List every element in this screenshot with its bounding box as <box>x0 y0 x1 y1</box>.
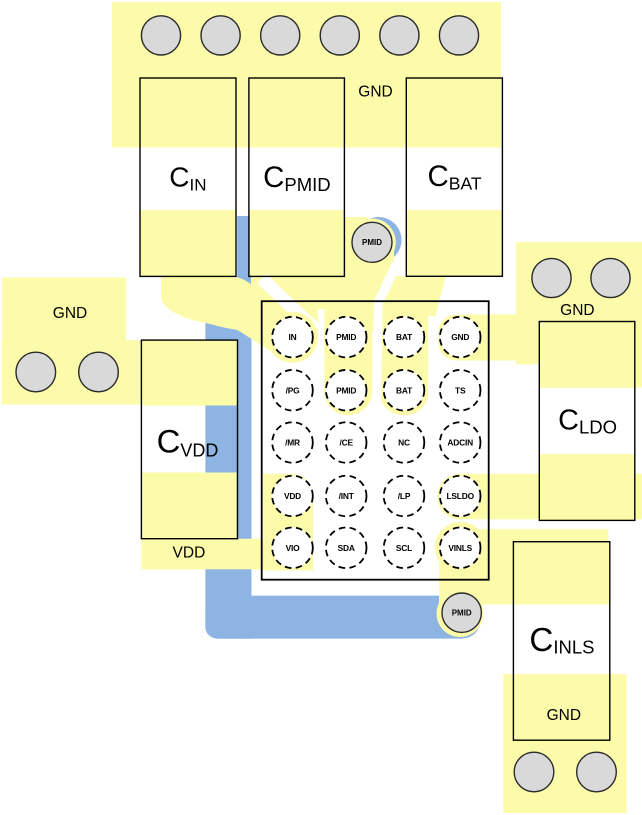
svg-text:GND: GND <box>53 305 87 322</box>
svg-text:SCL: SCL <box>396 543 412 553</box>
svg-text:/LP: /LP <box>398 491 411 501</box>
svg-text:VIO: VIO <box>286 543 301 553</box>
svg-text:SDA: SDA <box>338 543 355 553</box>
svg-text:/MR: /MR <box>285 438 300 448</box>
svg-text:ADCIN: ADCIN <box>447 438 473 448</box>
svg-text:PMID: PMID <box>362 238 382 247</box>
svg-text:IN: IN <box>289 332 297 342</box>
svg-text:GND: GND <box>451 332 469 342</box>
svg-text:PMID: PMID <box>336 385 356 395</box>
svg-text:BAT: BAT <box>396 385 413 395</box>
svg-text:NC: NC <box>398 438 410 448</box>
svg-text:GND: GND <box>358 84 392 101</box>
svg-text:PMID: PMID <box>452 609 472 618</box>
svg-text:VINLS: VINLS <box>448 543 472 553</box>
svg-text:LSLDO: LSLDO <box>447 491 475 501</box>
svg-text:/INT: /INT <box>339 491 355 501</box>
svg-text:BAT: BAT <box>396 332 413 342</box>
svg-text:TS: TS <box>455 385 466 395</box>
svg-text:GND: GND <box>560 302 594 319</box>
svg-text:VDD: VDD <box>173 544 206 561</box>
svg-text:PMID: PMID <box>336 332 356 342</box>
svg-text:/PG: /PG <box>286 385 300 395</box>
svg-text:/CE: /CE <box>340 438 354 448</box>
svg-text:GND: GND <box>547 707 581 724</box>
svg-text:VDD: VDD <box>284 491 301 501</box>
